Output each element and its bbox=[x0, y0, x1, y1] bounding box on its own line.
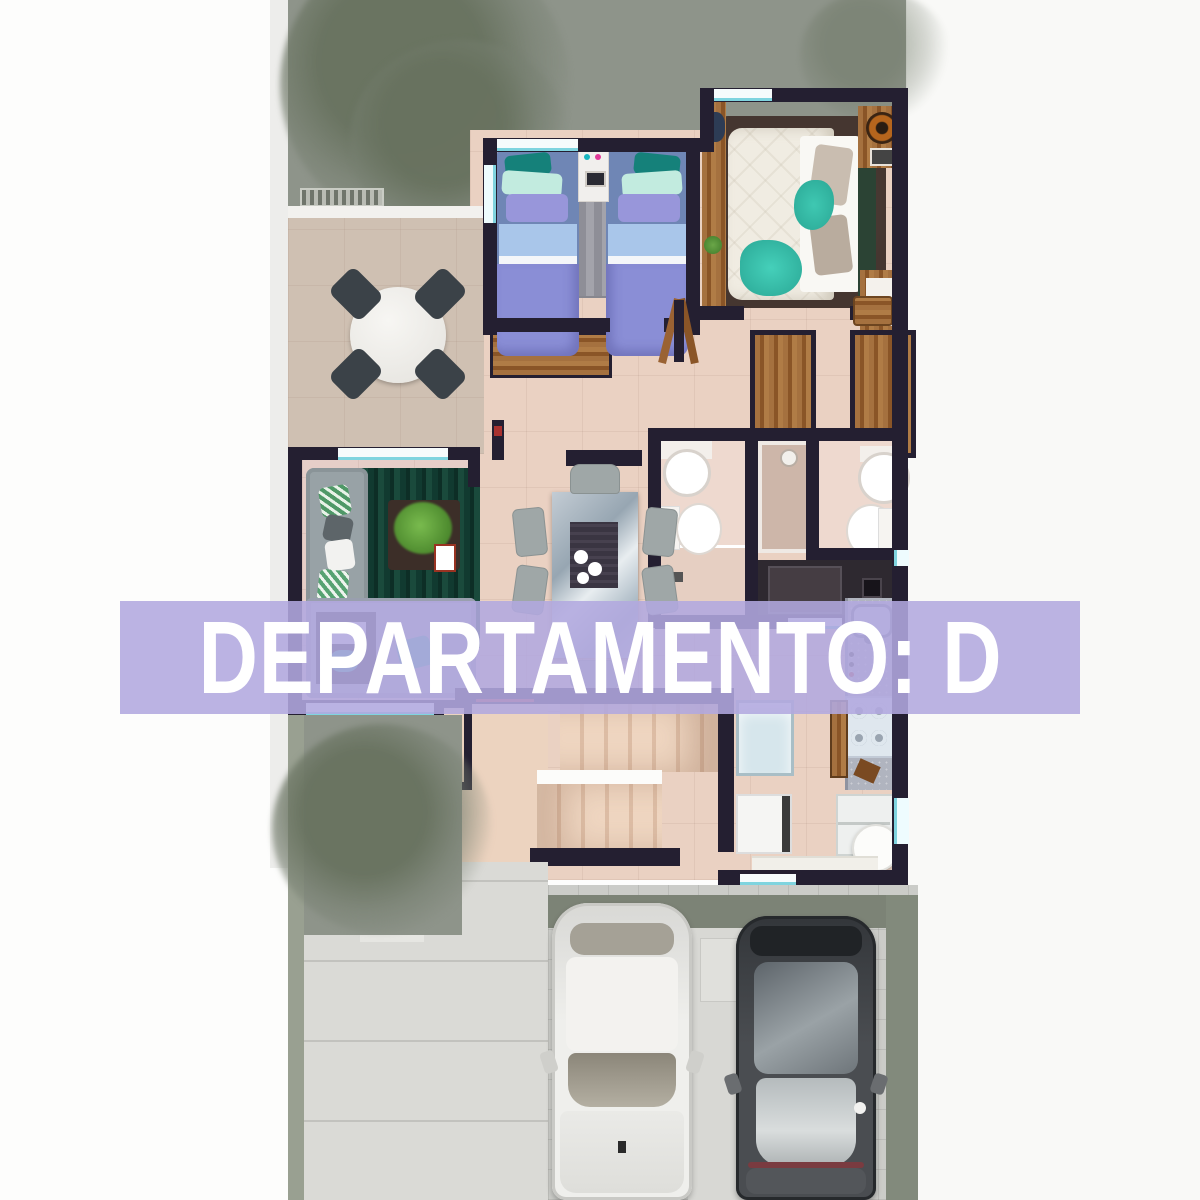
emblem bbox=[618, 1141, 626, 1153]
rack-bar bbox=[674, 300, 684, 362]
pillow-green-1 bbox=[318, 484, 353, 519]
living-window-top bbox=[338, 448, 448, 460]
living-wall-right-stub bbox=[468, 447, 480, 487]
driveway-border-right bbox=[886, 895, 918, 1200]
kids-bed-right bbox=[606, 150, 688, 306]
left-edge-strip bbox=[270, 0, 288, 868]
deco-dot-pink bbox=[595, 154, 601, 160]
front-bumper bbox=[746, 1168, 866, 1194]
right-outer-wall bbox=[892, 88, 908, 880]
rear-glass bbox=[570, 923, 674, 955]
teal-throw-1 bbox=[740, 240, 802, 296]
bath-left-sink bbox=[663, 449, 711, 497]
tablet bbox=[585, 171, 606, 187]
bath-divider-2 bbox=[806, 428, 819, 560]
deco-dot-teal bbox=[584, 154, 590, 160]
hall-stool bbox=[853, 296, 893, 326]
bath-left-toilet-bowl bbox=[676, 503, 722, 555]
windshield-reflection bbox=[756, 1078, 856, 1166]
closet-drain bbox=[862, 578, 882, 598]
master-bed bbox=[728, 128, 876, 300]
pillow-lavender bbox=[618, 194, 680, 222]
coat-rack bbox=[660, 298, 700, 366]
utility-window-bottom bbox=[740, 874, 796, 885]
car-dark bbox=[736, 916, 876, 1200]
roof-glass bbox=[754, 962, 858, 1074]
stairs-wall-bottom bbox=[530, 848, 680, 866]
bath-wall-top bbox=[648, 428, 906, 441]
banner-text: DEPARTAMENTO: D bbox=[198, 601, 1002, 714]
stairs-lower-flight bbox=[537, 784, 662, 850]
magazine bbox=[434, 544, 456, 572]
tree-bottom bbox=[272, 724, 492, 934]
sheet-fold bbox=[608, 256, 686, 264]
stairs-landing bbox=[537, 770, 662, 784]
terrace-ledge bbox=[288, 206, 484, 218]
sensor-dot bbox=[854, 1102, 866, 1114]
roof bbox=[566, 957, 678, 1051]
floor-plan-canvas: DEPARTAMENTO: D bbox=[0, 0, 1200, 1200]
dining-chair-right-1 bbox=[642, 506, 679, 557]
closet-wall-top bbox=[806, 548, 906, 560]
title-banner: DEPARTAMENTO: D bbox=[120, 601, 1080, 714]
shower-head bbox=[780, 449, 798, 467]
phone bbox=[870, 148, 894, 166]
master-wall-left bbox=[700, 88, 714, 152]
garden-grate bbox=[300, 188, 384, 207]
windshield bbox=[568, 1053, 676, 1107]
plate-2 bbox=[588, 562, 602, 576]
kids-wall-bottom-left bbox=[483, 318, 610, 332]
burner-3 bbox=[851, 730, 867, 746]
washer bbox=[736, 794, 792, 854]
pillow-white-1 bbox=[324, 538, 356, 572]
sheet-fold bbox=[499, 256, 577, 264]
dining-chair-left-1 bbox=[512, 506, 549, 557]
desk-plant bbox=[704, 236, 722, 254]
coffee-planter-table bbox=[388, 500, 460, 570]
burner-4 bbox=[871, 730, 887, 746]
kids-nightstand bbox=[578, 148, 609, 202]
kids-window-left bbox=[484, 165, 496, 223]
kids-bed-left bbox=[497, 150, 579, 306]
plate-1 bbox=[574, 550, 588, 564]
washer-controls bbox=[782, 796, 790, 852]
comforter bbox=[497, 264, 579, 356]
pillow-lavender bbox=[506, 194, 568, 222]
right-wall-window-1 bbox=[894, 550, 909, 566]
right-wall-window-2 bbox=[894, 798, 909, 844]
bath-divider-1 bbox=[745, 428, 758, 622]
kids-window-top bbox=[492, 139, 578, 151]
master-window-top bbox=[706, 89, 772, 101]
dining-chair-top bbox=[570, 464, 620, 494]
plate-3 bbox=[577, 572, 589, 584]
rear-band bbox=[750, 926, 862, 956]
master-wall-bottom-left bbox=[700, 306, 744, 320]
terrace-decor-red bbox=[494, 426, 502, 436]
car-white bbox=[552, 903, 692, 1200]
light-band bbox=[748, 1162, 864, 1168]
